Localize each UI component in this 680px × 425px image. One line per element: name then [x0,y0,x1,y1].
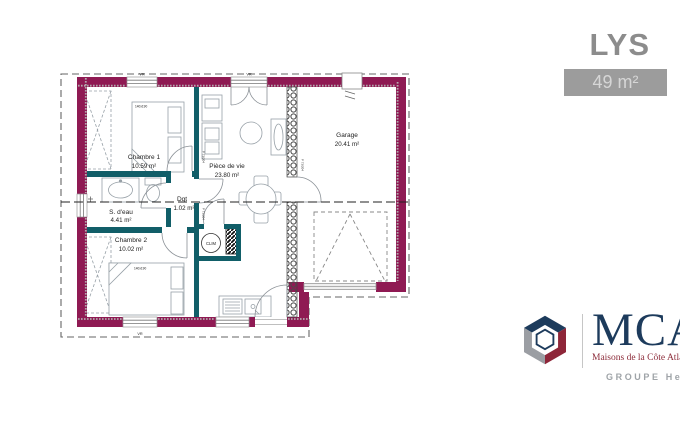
page: LYS 49 m² [0,0,680,425]
window-chambre2 [123,317,157,327]
door-french-right [249,87,267,105]
shutter-label-3: VR [137,332,143,336]
room-label-garage: Garage [336,132,358,139]
brand-group: GROUPE Hexa [606,372,680,382]
side-table [240,122,262,144]
door-chambre2 [162,233,187,258]
area-badge: 49 m² [564,69,667,96]
bathroom-vanity [102,178,139,202]
window-kitchen [216,317,249,327]
furniture [84,91,286,317]
french-door-living [231,77,267,87]
room-area-sejour: 23.80 m² [215,172,239,179]
door-bathroom [141,183,166,208]
door-size-label-1: P 73/204 [202,151,206,163]
dining-set [239,176,281,223]
room-label-sdeau: S. d'eau [109,209,133,216]
room-area-garage: 20.41 m² [335,141,359,148]
room-label-sejour: Pièce de vie [209,163,245,170]
brand-block: MCA Maisons de la Côte Atlantique GROUPE… [517,311,680,382]
shutter-label-1: VR [139,73,145,77]
kitchen-counter [219,296,271,317]
room-area-sdeau: 4.41 m² [111,217,132,224]
garage-door [304,212,387,292]
door-size-label-2: P 73/204 [202,208,206,220]
clim-unit: CLIM [202,234,221,253]
brand-tagline: Maisons de la Côte Atlantique [592,353,680,363]
bed-size-label-2: 140x190 [134,267,146,271]
bed-chambre1 [132,102,184,172]
console-table [271,119,286,155]
room-label-chambre1: Chambre 1 [128,154,161,161]
wardrobe-chambre1 [84,91,111,169]
wardrobe-chambre2 [84,237,111,313]
room-area-chambre2: 10.02 m² [119,246,143,253]
clim-label: CLIM [206,241,217,246]
bed-size-label-1: 140x190 [135,105,147,109]
floor-drain [88,197,93,202]
shutter-label-2: VR [246,73,252,77]
door-size-label-3: P 73/204 [301,159,305,171]
brand-divider [582,314,583,368]
brand-name: MCA [592,311,680,350]
model-name: LYS [590,27,650,63]
room-area-dgt: 1.02 m² [174,205,195,212]
entrance-opening [255,317,287,327]
toilet [145,178,161,202]
bed-chambre2 [109,263,184,315]
mca-logo-icon [517,311,573,369]
room-label-chambre2: Chambre 2 [115,237,148,244]
brand-text: MCA Maisons de la Côte Atlantique GROUPE… [592,311,680,382]
storage-units [202,95,222,159]
room-area-chambre1: 10.59 m² [132,163,156,170]
window-chambre1 [127,77,157,87]
vent-garage [342,73,362,99]
door-garage-access [297,177,321,202]
window-bathroom [77,194,87,217]
floor-plan: CLIM Chambre 1 10.59 m² S. d'eau 4.41 m²… [59,71,411,339]
door-french-left [231,87,249,105]
